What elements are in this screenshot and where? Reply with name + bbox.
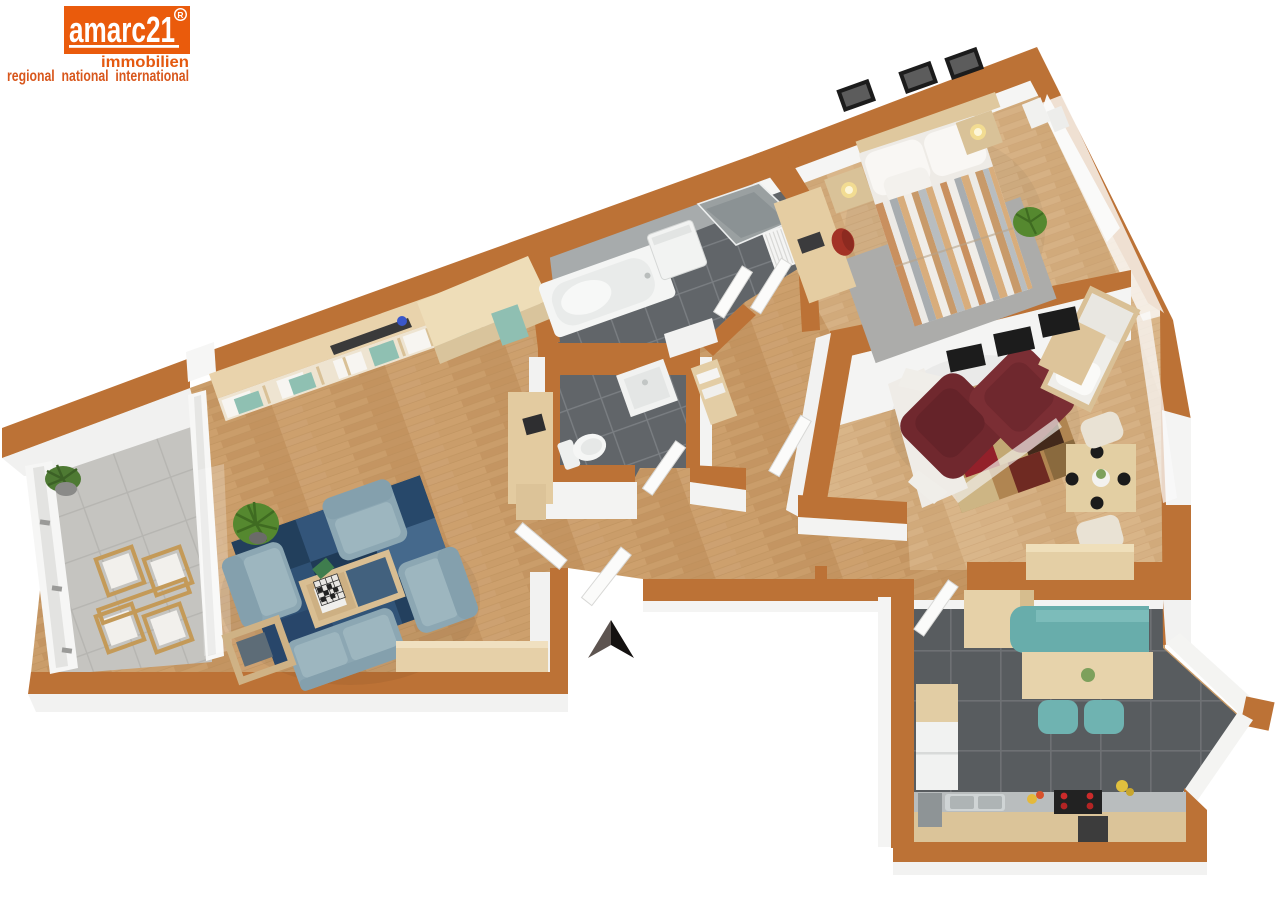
svg-text:regional national internatio: regional national international [7, 68, 189, 85]
svg-text:amarc21: amarc21 [69, 9, 175, 50]
svg-text:R: R [177, 10, 183, 20]
